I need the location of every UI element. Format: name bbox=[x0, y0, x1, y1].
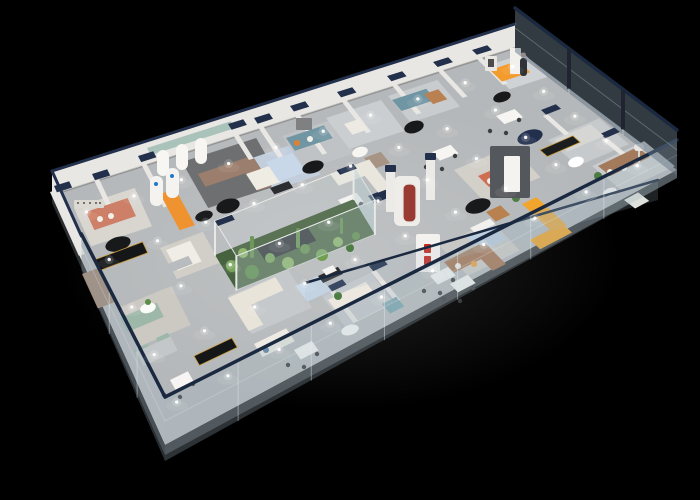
brand-logo-blue bbox=[170, 174, 174, 178]
ceiling-light bbox=[130, 305, 133, 308]
ceiling-light bbox=[376, 199, 379, 202]
ceiling-light bbox=[204, 220, 207, 223]
pillar-cap bbox=[425, 153, 436, 160]
ceiling-light bbox=[416, 97, 419, 100]
dining-chair bbox=[453, 154, 457, 158]
ceiling-light bbox=[349, 164, 352, 167]
dining-chair bbox=[440, 167, 444, 171]
sign-glyph bbox=[89, 202, 91, 204]
ceiling-light bbox=[227, 162, 230, 165]
ceiling-light bbox=[322, 130, 325, 133]
ceiling-light bbox=[329, 322, 332, 325]
showroom-render-canvas bbox=[0, 0, 700, 500]
ceiling-light bbox=[253, 305, 256, 308]
art-frame-center bbox=[488, 59, 494, 67]
glass-post bbox=[621, 89, 625, 129]
ceiling-light bbox=[494, 108, 497, 111]
dining-chair bbox=[504, 131, 508, 135]
sofa-cushion bbox=[97, 216, 103, 222]
floorplan-svg bbox=[0, 0, 700, 500]
ceiling-light bbox=[425, 178, 428, 181]
ceiling-light bbox=[511, 65, 514, 68]
ceiling-light bbox=[278, 242, 281, 245]
ceiling-light bbox=[554, 163, 557, 166]
arch-niche bbox=[176, 144, 188, 170]
ceiling-light bbox=[542, 90, 545, 93]
ceiling-light bbox=[229, 263, 232, 266]
dining-chair bbox=[517, 118, 521, 122]
ceiling-light bbox=[353, 258, 356, 261]
red-j-wall bbox=[403, 184, 416, 222]
arch-niche bbox=[195, 138, 207, 164]
ceiling-light bbox=[463, 81, 466, 84]
ceiling-light bbox=[454, 210, 457, 213]
sign-glyph bbox=[83, 202, 85, 204]
ceiling-light bbox=[180, 178, 183, 181]
dining-chair bbox=[458, 299, 462, 303]
ceiling-light bbox=[584, 190, 587, 193]
ceiling-light bbox=[482, 243, 485, 246]
ceiling-light bbox=[380, 295, 383, 298]
tv-inset bbox=[296, 118, 312, 130]
ceiling-light bbox=[252, 202, 255, 205]
brand-logo-blue bbox=[154, 182, 158, 186]
white-pillow bbox=[307, 136, 313, 142]
ceiling-light bbox=[85, 210, 88, 213]
ceiling-light bbox=[277, 348, 280, 351]
ceiling-light bbox=[303, 282, 306, 285]
orange-pillow bbox=[294, 140, 300, 146]
ceiling-light bbox=[397, 146, 400, 149]
ceiling-light bbox=[108, 258, 111, 261]
sign-glyph bbox=[99, 202, 101, 204]
ceiling-light bbox=[604, 139, 607, 142]
ceiling-light bbox=[524, 136, 527, 139]
ceiling-light bbox=[369, 113, 372, 116]
pillar-cap bbox=[385, 165, 396, 172]
ceiling-light bbox=[445, 127, 448, 130]
ceiling-light bbox=[179, 284, 182, 287]
ceiling-light bbox=[475, 157, 478, 160]
ceiling-light bbox=[327, 220, 330, 223]
dining-chair bbox=[488, 129, 492, 133]
sign-glyph bbox=[77, 202, 79, 204]
ceiling-light bbox=[404, 234, 407, 237]
ceiling-light bbox=[533, 217, 536, 220]
ceiling-light bbox=[132, 194, 135, 197]
arch-display-board bbox=[150, 176, 163, 206]
ceiling-light bbox=[156, 239, 159, 242]
ceiling-light bbox=[504, 187, 507, 190]
glass-post bbox=[567, 49, 571, 89]
ceiling-light bbox=[636, 164, 639, 167]
ceiling-light bbox=[573, 114, 576, 117]
wall-sign bbox=[74, 200, 104, 208]
ceiling-light bbox=[301, 183, 304, 186]
ceiling-light bbox=[153, 353, 156, 356]
ceiling-light bbox=[274, 146, 277, 149]
ceiling-light bbox=[431, 269, 434, 272]
ceiling-light bbox=[175, 400, 178, 403]
sofa-cushion bbox=[108, 213, 114, 219]
ceiling-light bbox=[226, 374, 229, 377]
flower-vase bbox=[145, 299, 151, 305]
sign-glyph bbox=[95, 202, 97, 204]
ceiling-light bbox=[203, 329, 206, 332]
